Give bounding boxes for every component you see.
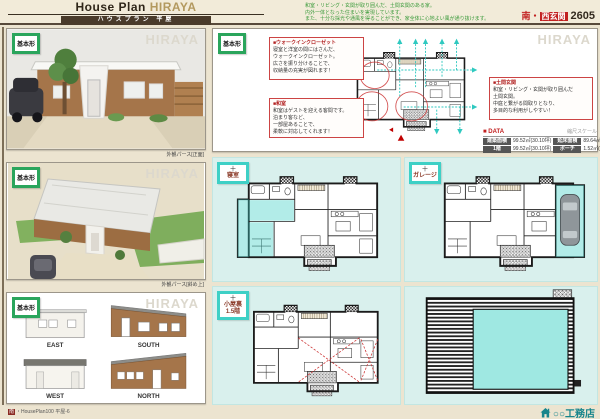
render-panel-aerial: 基本形 HIRAYA — [6, 162, 206, 280]
main-plan-panel: 基本形 HIRAYA ■ウォークインクローゼット 寝室と洋室の間にはさんだ、 ウ… — [212, 28, 598, 152]
annotation-line: 寝室と洋室の間にはさんだ、 — [273, 47, 360, 54]
data-table: ■ DATA 縮尺スケール 建築面積 99.52㎡(30.10坪) 延床面積 8… — [483, 128, 597, 153]
intro-notes: 和室・リビング・玄関が取り囲んだ、土間玄関のある家。 内外一体となった住まいを実… — [305, 3, 500, 23]
watermark: HIRAYA — [146, 296, 199, 311]
garage-variant-plan — [421, 166, 589, 277]
house-icon — [540, 408, 551, 418]
elevation-label-east: EAST — [47, 342, 64, 349]
catalog-page: House Plan HIRAYA ハウスプラン 平屋 和室・リビング・玄関が取… — [0, 0, 600, 419]
page-title: House Plan HIRAYA — [8, 1, 264, 15]
basic-form-label: 基本形 — [12, 167, 40, 188]
variant-name-line2: 1.5階 — [220, 309, 246, 316]
car-top-view-icon — [560, 195, 579, 246]
annotation-wic: ■ウォークインクローゼット 寝室と洋室の間にはさんだ、 ウォークインクローゼット… — [269, 37, 364, 80]
annotation-title: ■土間玄関 — [493, 80, 589, 87]
annotation-doma: ■土間玄関 和室・リビング・玄関が取り囲んだ 土間玄関。 中庭と繋がる間取りとな… — [489, 77, 593, 120]
basic-form-label: 基本形 — [12, 33, 40, 54]
data-label: 建築面積 — [483, 138, 511, 145]
sheet-footer-left: 南 ・HousePlan100 平屋-6 — [8, 408, 70, 415]
attic-plan-panel — [404, 286, 598, 405]
page-subtitle: ハウスプラン 平屋 — [61, 16, 211, 25]
variant-panel-bedroom: ＋ 寝室 — [212, 157, 401, 282]
variant-panel-attic: ＋ 小屋裏 1.5階 — [212, 286, 401, 405]
data-value: 99.52㎡(30.10坪) — [513, 146, 551, 153]
data-value: 1.52㎡(0.45坪) — [583, 146, 600, 153]
company-logo: ○○工務店 — [540, 405, 595, 419]
entrance-triangle-icon — [398, 135, 405, 141]
data-label: 延床面積 — [553, 138, 581, 145]
annotation-line: 中庭と繋がる間取りとなり、 — [493, 101, 589, 108]
title-prefix: House Plan — [76, 0, 150, 14]
plan-tag: 南・西玄関2605 — [522, 6, 596, 24]
plan-tag-number: 2605 — [571, 10, 595, 22]
plus-sign: ＋ — [220, 166, 246, 173]
annotation-line: 柔軟に対応してくれます！ — [273, 129, 360, 136]
variant-label-bedroom: ＋ 寝室 — [217, 162, 249, 184]
plus-sign: ＋ — [220, 295, 246, 302]
intro-note-line: また、十分な採光や通風を得ることができ、家全体に心地よい風が通り抜けます。 — [305, 16, 500, 23]
variant-name: ガレージ — [412, 173, 438, 180]
watermark: HIRAYA — [538, 32, 591, 47]
annotation-line: ウォークインクローゼット。 — [273, 54, 360, 61]
attic-floor-plan — [405, 287, 599, 406]
company-name: ○○工務店 — [553, 405, 595, 419]
annotation-line: 一部屋あることで、 — [273, 122, 360, 129]
render-panel-front: 基本形 HIRAYA — [6, 28, 206, 150]
variant-label-garage: ＋ ガレージ — [409, 162, 441, 184]
annotation-washitsu: ■和室 和室はゲストを迎える客間です。 泊まり客など、 一部屋あることで、 柔軟… — [269, 98, 364, 138]
annotation-line: 多目的な利用がしやすい！ — [493, 108, 589, 115]
title-accent: HIRAYA — [150, 0, 197, 14]
basic-form-label: 基本形 — [12, 297, 40, 318]
data-label: ポーチ — [553, 146, 581, 153]
watermark: HIRAYA — [146, 32, 199, 47]
data-value: 99.52㎡(30.10坪) — [513, 138, 551, 145]
basic-form-label: 基本形 — [218, 33, 246, 54]
bedroom-variant-plan — [225, 166, 393, 277]
variant-name: 寝室 — [220, 173, 246, 180]
data-table-title: ■ DATA — [483, 129, 504, 135]
variant-name: 小屋裏 — [220, 302, 246, 309]
page-header: House Plan HIRAYA ハウスプラン 平屋 和室・リビング・玄関が取… — [0, 0, 600, 25]
annotation-title: ■和室 — [273, 101, 360, 108]
front-render-caption: 外観パース[正面] — [6, 151, 204, 158]
annotation-line: 土間玄関。 — [493, 94, 589, 101]
variant-panel-garage: ＋ ガレージ — [404, 157, 598, 282]
variant-label-attic: ＋ 小屋裏 1.5階 — [217, 291, 249, 320]
annotation-line: 泊まり客など、 — [273, 115, 360, 122]
footer-direction-badge: 南 — [8, 409, 15, 415]
plan-tag-badge: 西玄関 — [540, 12, 568, 21]
annotation-title: ■ウォークインクローゼット — [273, 40, 360, 47]
elevation-label-south: SOUTH — [138, 342, 160, 349]
entrance-arrow-icon — [389, 127, 393, 132]
watermark: HIRAYA — [146, 166, 199, 181]
footer-series-text: ・HousePlan100 平屋-6 — [16, 408, 70, 415]
elevation-label-west: WEST — [46, 393, 64, 400]
data-table-scale-note: 縮尺スケール — [567, 128, 597, 135]
elevations-panel: 基本形 HIRAYA — [6, 292, 206, 404]
data-label: 1階 — [483, 146, 511, 153]
annotation-line: 収納量の充実が図れます！ — [273, 68, 360, 75]
left-edge-rule — [2, 27, 4, 405]
data-value: 89.64㎡(27.11坪) — [583, 138, 600, 145]
brand-block: House Plan HIRAYA ハウスプラン 平屋 — [8, 1, 264, 25]
elevation-label-north: NORTH — [138, 393, 161, 400]
aerial-render-caption: 外観パース[斜め上] — [6, 281, 204, 288]
annotation-line: 広さを振り分けることで、 — [273, 61, 360, 68]
plan-tag-direction: 南・ — [522, 11, 540, 21]
plus-sign: ＋ — [412, 166, 438, 173]
annotation-line: 和室はゲストを迎える客間です。 — [273, 108, 360, 115]
attic-variant-plan — [231, 295, 393, 402]
annotation-line: 和室・リビング・玄関が取り囲んだ — [493, 87, 589, 94]
